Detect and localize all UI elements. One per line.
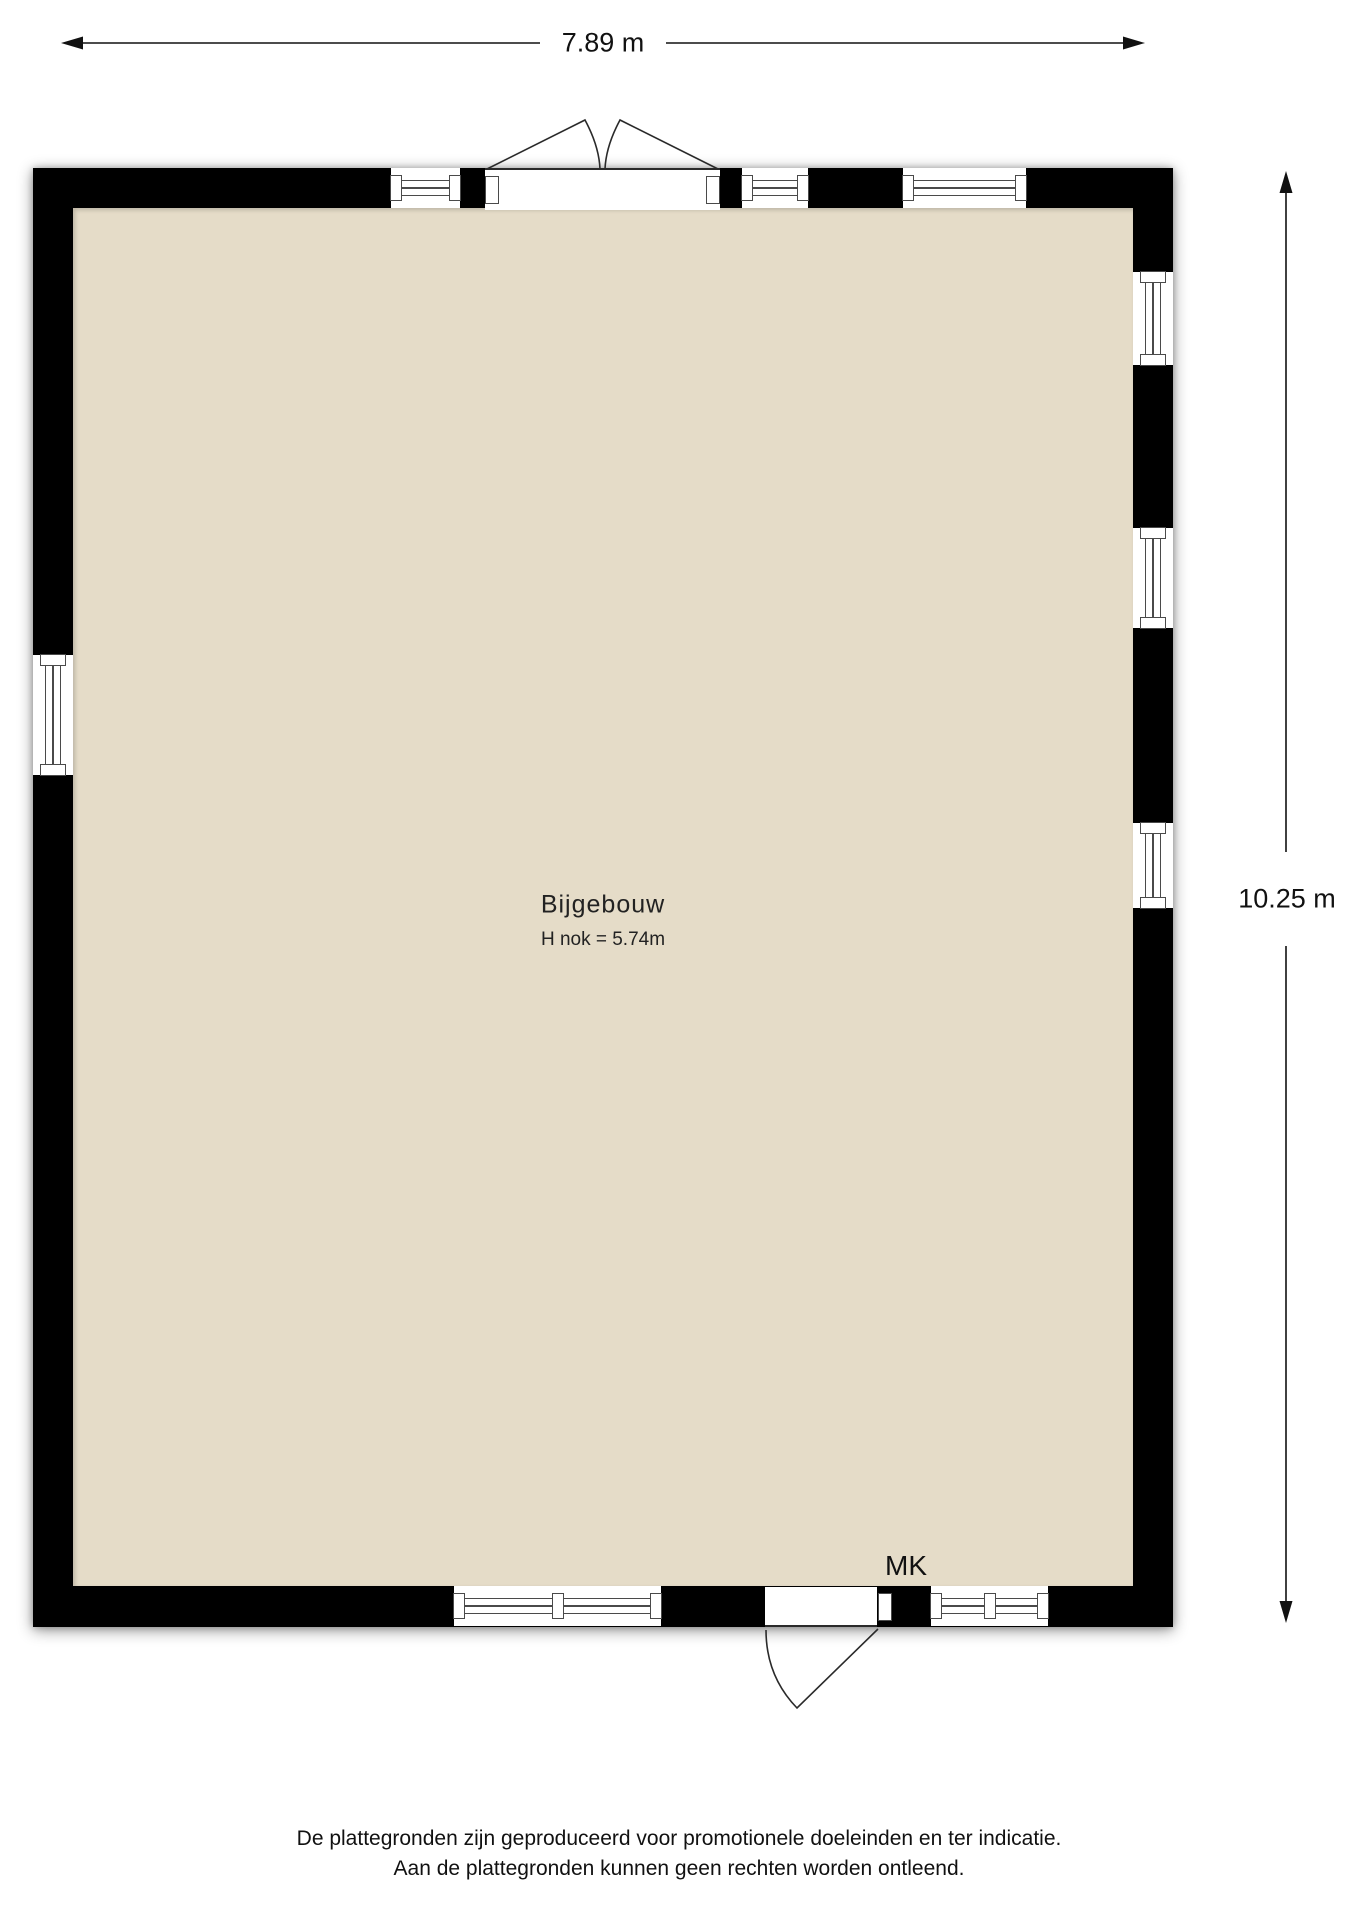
window-right-1 xyxy=(1133,272,1173,365)
window-frame-cap xyxy=(984,1593,996,1619)
room-name-label: Bijgebouw xyxy=(541,891,665,920)
disclaimer-line-1: De plattegronden zijn geproduceerd voor … xyxy=(0,1824,1358,1854)
window-glass xyxy=(1145,528,1161,628)
arrow-left-icon xyxy=(61,37,83,50)
window-frame-cap xyxy=(552,1593,564,1619)
door-hinge-icon xyxy=(878,1593,892,1621)
double-door-top xyxy=(485,168,720,210)
window-frame-cap xyxy=(797,175,809,201)
window-glass xyxy=(1145,272,1161,365)
door-swing-arc-top-right xyxy=(605,120,718,169)
door-swing-arc-top-left xyxy=(487,120,600,169)
window-frame-cap xyxy=(453,1593,465,1619)
window-right-3 xyxy=(1133,823,1173,908)
window-top-1 xyxy=(391,168,460,208)
disclaimer-line-2: Aan de plattegronden kunnen geen rechten… xyxy=(0,1854,1358,1884)
window-frame-cap xyxy=(1140,617,1166,629)
window-glass xyxy=(45,655,61,775)
window-frame-cap xyxy=(449,175,461,201)
window-frame-cap xyxy=(902,175,914,201)
floorplan-page: 7.89 m 10.25 m Bijgebouw H nok = 5.74m M… xyxy=(0,0,1358,1920)
window-frame-cap xyxy=(1140,897,1166,909)
window-bottom-1 xyxy=(454,1586,661,1626)
window-frame-cap xyxy=(40,764,66,776)
height-dimension-label: 10.25 m xyxy=(1236,878,1338,921)
window-frame-cap xyxy=(1037,1593,1049,1619)
window-frame-cap xyxy=(40,654,66,666)
door-hinge-icon xyxy=(485,176,499,204)
window-frame-cap xyxy=(1015,175,1027,201)
window-frame-cap xyxy=(1140,271,1166,283)
footer-disclaimer: De plattegronden zijn geproduceerd voor … xyxy=(0,1824,1358,1885)
window-glass xyxy=(903,180,1026,196)
window-frame-cap xyxy=(390,175,402,201)
meter-closet-label: MK xyxy=(885,1550,927,1582)
door-bottom xyxy=(765,1587,877,1627)
window-glass xyxy=(1145,823,1161,908)
arrow-up-icon xyxy=(1280,171,1293,193)
door-hinge-icon xyxy=(706,176,720,204)
window-frame-cap xyxy=(930,1593,942,1619)
door-swing-arc-bottom xyxy=(766,1629,878,1708)
window-bottom-2 xyxy=(931,1586,1048,1626)
window-frame-cap xyxy=(741,175,753,201)
window-right-2 xyxy=(1133,528,1173,628)
room-height-note-label: H nok = 5.74m xyxy=(541,929,665,951)
window-frame-cap xyxy=(650,1593,662,1619)
window-frame-cap xyxy=(1140,527,1166,539)
window-top-3 xyxy=(903,168,1026,208)
width-dimension-label: 7.89 m xyxy=(552,28,655,59)
window-frame-cap xyxy=(1140,822,1166,834)
window-left-1 xyxy=(33,655,73,775)
arrow-down-icon xyxy=(1280,1601,1293,1623)
window-top-2 xyxy=(742,168,808,208)
arrow-right-icon xyxy=(1123,37,1145,50)
window-frame-cap xyxy=(1140,354,1166,366)
